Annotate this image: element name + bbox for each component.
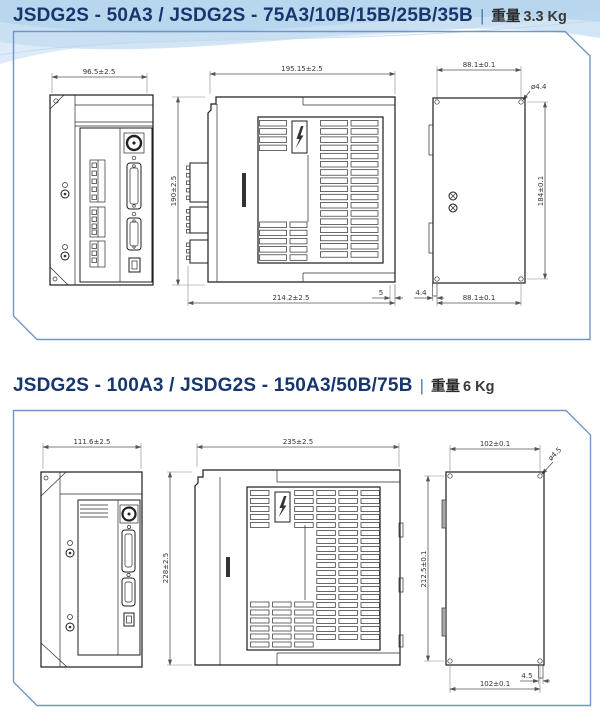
section1-model-text: JSDG2S - 50A3 / JSDG2S - 75A3/10B/15B/25…: [13, 5, 473, 26]
front-connectors: [124, 133, 144, 272]
vent-slot: [317, 507, 336, 512]
vent-slot: [317, 547, 336, 552]
vent-slot: [321, 121, 348, 127]
vent-slot: [361, 579, 380, 584]
vent-slot: [92, 217, 97, 222]
vent-slot: [339, 635, 358, 640]
vent-slot: [317, 587, 336, 592]
section2-weight-label: 重量: [431, 379, 460, 395]
title-separator: |: [420, 376, 424, 395]
vent-slot: [187, 166, 190, 170]
side-connectors: [187, 163, 209, 263]
section2-height-dim: 228±2.5: [162, 472, 192, 665]
vent-slot: [187, 196, 190, 200]
vent-slot: [361, 555, 380, 560]
vent-slot: [317, 531, 336, 536]
vent-slot: [361, 491, 380, 496]
door-vent-lines: [80, 505, 108, 517]
vent-slot: [251, 610, 270, 615]
vent-slot: [187, 243, 190, 247]
vent-slot: [317, 539, 336, 544]
vent-slot: [273, 602, 292, 607]
dim-side-bottom-width-1: 214.2±2.5: [272, 294, 309, 302]
section1-front-view: 96.5±2.5: [50, 68, 153, 285]
dsub-connector-large: [122, 530, 135, 572]
vent-slot: [187, 256, 190, 260]
warning-label: [275, 492, 290, 522]
vent-slot: [351, 145, 378, 151]
vent-slot: [351, 203, 378, 209]
vent-slot: [339, 555, 358, 560]
usb-port-icon: [124, 613, 134, 626]
vent-slot: [321, 227, 348, 233]
dim-back-tab-2: 4.5: [521, 672, 532, 680]
vent-slot: [321, 211, 348, 217]
vent-slots: [251, 491, 380, 648]
vent-slot: [260, 145, 287, 151]
vent-slot: [351, 170, 378, 176]
vent-slot: [339, 547, 358, 552]
section2-weight-value: 6 Kg: [463, 379, 494, 395]
vent-slot: [321, 170, 348, 176]
vent-slot: [187, 181, 190, 185]
vent-slot: [361, 499, 380, 504]
vent-slot: [295, 499, 314, 504]
dsub-connector-small: [127, 218, 141, 250]
vent-slot: [321, 186, 348, 192]
vent-slot: [92, 224, 97, 229]
vent-slot: [361, 619, 380, 624]
vent-slot: [251, 626, 270, 631]
vent-slot: [317, 571, 336, 576]
vent-slot: [339, 523, 358, 528]
panel-2-frame: [14, 411, 591, 706]
dim-back-tab-1: 4.4: [415, 289, 427, 297]
front-connectors-2: [120, 505, 138, 626]
vent-slot: [92, 258, 97, 263]
vent-slot: [351, 219, 378, 225]
dim-side-top-width-1: 195.15±2.5: [281, 65, 323, 73]
vent-slot: [321, 137, 348, 143]
vent-slot: [295, 602, 314, 607]
vent-slot: [361, 531, 380, 536]
vent-slot: [339, 595, 358, 600]
vent-slot: [251, 499, 270, 504]
section2-side-view: 235±2.5: [195, 438, 403, 665]
vent-slot: [295, 642, 314, 647]
mount-hole-icon: [448, 659, 452, 663]
vent-slot: [251, 642, 270, 647]
vent-slot: [92, 210, 97, 215]
mount-hole-icon: [435, 100, 439, 104]
vent-slot: [295, 507, 314, 512]
vent-slot: [317, 563, 336, 568]
vent-slot: [351, 129, 378, 135]
vent-slot: [339, 587, 358, 592]
dim-body-height-2: 228±2.5: [162, 553, 170, 583]
vent-slot: [92, 244, 97, 249]
vent-slot: [260, 222, 287, 228]
vent-slot: [187, 189, 190, 193]
vent-slot: [361, 547, 380, 552]
vent-slot: [295, 618, 314, 623]
vent-slot: [273, 610, 292, 615]
vent-slot: [339, 571, 358, 576]
dim-back-bottom-width-2: 102±0.1: [480, 680, 510, 688]
dim-back-height-1: 184±0.1: [537, 176, 545, 206]
vent-slot: [317, 555, 336, 560]
vent-slot: [339, 579, 358, 584]
vent-slot: [351, 194, 378, 200]
vent-slot: [351, 235, 378, 241]
vent-slot: [339, 531, 358, 536]
vent-slot: [260, 129, 287, 135]
vent-slot: [351, 211, 378, 217]
vent-slot: [339, 603, 358, 608]
vent-slot: [187, 217, 190, 221]
vent-slot: [295, 515, 314, 520]
vent-slot: [187, 210, 190, 214]
vent-slot: [317, 603, 336, 608]
handle-slot-icon: [242, 173, 246, 207]
vent-slot: [339, 515, 358, 520]
handle-slot-icon: [226, 557, 230, 577]
mount-hole-icon: [519, 277, 523, 281]
vent-slot: [260, 121, 287, 127]
vent-slot: [351, 227, 378, 233]
vent-slot: [339, 563, 358, 568]
vent-slot: [361, 563, 380, 568]
vent-slot: [361, 571, 380, 576]
vent-slot: [339, 491, 358, 496]
dim-hole-diameter-2: ø4.5: [547, 446, 564, 463]
vent-slot: [251, 515, 270, 520]
dim-hole-diameter-1: ø4.4: [531, 83, 547, 91]
vent-slot: [295, 523, 314, 528]
dim-front-width-1: 96.5±2.5: [83, 68, 116, 76]
section2-title: JSDG2S - 100A3 / JSDG2S - 150A3/50B/75B|…: [13, 375, 494, 397]
vent-slot: [92, 195, 97, 200]
vent-slot: [339, 539, 358, 544]
vent-slot: [361, 611, 380, 616]
vent-slot: [321, 129, 348, 135]
vent-slot: [351, 252, 378, 258]
vent-slot: [317, 579, 336, 584]
section1-side-view: 195.15±2.5 5 214.2±2.5: [187, 65, 404, 306]
vent-slot: [321, 178, 348, 184]
vent-slot: [351, 244, 378, 250]
mount-hole-icon: [519, 100, 523, 104]
vent-slot: [290, 255, 307, 260]
vent-slot: [187, 230, 190, 234]
vent-slot: [273, 618, 292, 623]
vent-slot: [321, 203, 348, 209]
vent-slot: [339, 627, 358, 632]
section1-title: JSDG2S - 50A3 / JSDG2S - 75A3/10B/15B/25…: [13, 5, 567, 27]
vent-slot: [92, 187, 97, 192]
lightning-bolt-icon: [296, 126, 304, 149]
vent-slot: [351, 186, 378, 192]
mount-hole-icon: [448, 474, 452, 478]
vent-slot: [290, 222, 307, 228]
vent-slot: [339, 611, 358, 616]
vent-slot: [361, 523, 380, 528]
vent-slot: [260, 255, 287, 260]
section2-front-view: 111.6±2.5: [41, 438, 142, 667]
vent-slot: [260, 230, 287, 236]
vent-slot: [290, 247, 307, 253]
vent-slot: [273, 634, 292, 639]
vent-slot: [92, 171, 97, 176]
mount-hole-icon: [435, 277, 439, 281]
vent-slot: [187, 250, 190, 254]
vent-slot: [321, 194, 348, 200]
vent-slot: [339, 499, 358, 504]
vent-slot: [317, 523, 336, 528]
mount-hole-icon: [538, 474, 542, 478]
vent-slot: [361, 515, 380, 520]
section1-weight-label: 重量: [491, 9, 520, 25]
vent-slot: [260, 137, 287, 143]
vent-slot: [251, 602, 270, 607]
dim-body-height-1: 190±2.5: [170, 176, 178, 206]
vent-slot: [351, 121, 378, 127]
vent-slot: [92, 230, 97, 235]
vent-slot: [290, 230, 307, 236]
section2-back-view: 102±0.1 ø4.5 212.5±0.1 4.5 102±0.1: [420, 440, 563, 693]
section2-model-text: JSDG2S - 100A3 / JSDG2S - 150A3/50B/75B: [13, 375, 413, 396]
section1-back-view: 88.1±0.1 ø4.4 4.4 184±0.1 88.1±0.1: [414, 61, 548, 306]
vent-slot: [92, 163, 97, 168]
vent-slot: [317, 515, 336, 520]
lightning-bolt-icon: [279, 496, 287, 518]
vent-slot: [295, 634, 314, 639]
vent-slot: [321, 235, 348, 241]
back-screws: [449, 192, 457, 212]
vent-slot: [351, 162, 378, 168]
vent-slot: [361, 539, 380, 544]
vent-slot: [251, 634, 270, 639]
vent-slot: [317, 491, 336, 496]
vent-slot: [351, 153, 378, 159]
vent-slot: [361, 603, 380, 608]
vent-slot: [295, 610, 314, 615]
vent-slot: [260, 247, 287, 253]
vent-slot: [92, 179, 97, 184]
vent-slot: [317, 499, 336, 504]
vent-slot: [321, 145, 348, 151]
dsub-connector-large: [127, 163, 141, 209]
dim-back-top-width-1: 88.1±0.1: [463, 61, 496, 69]
dim-side-gap-1: 5: [379, 289, 383, 297]
dimension-drawings: 96.5±2.5: [0, 0, 600, 720]
vent-slot: [317, 595, 336, 600]
usb-port-icon: [129, 258, 140, 272]
vent-slot: [361, 627, 380, 632]
vent-slot: [321, 219, 348, 225]
vent-slot: [351, 178, 378, 184]
vent-slot: [251, 618, 270, 623]
vent-slot: [321, 252, 348, 258]
flange-screws: [61, 183, 69, 261]
vent-slot: [321, 162, 348, 168]
vent-slot: [317, 619, 336, 624]
dim-back-bottom-width-1: 88.1±0.1: [463, 294, 496, 302]
dim-back-height-2: 212.5±0.1: [420, 550, 428, 587]
vent-slot: [361, 595, 380, 600]
section1-height-dim: 190±2.5: [170, 97, 205, 285]
section1-weight-value: 3.3 Kg: [523, 9, 567, 25]
vent-slot: [317, 635, 336, 640]
vent-slot: [361, 635, 380, 640]
mount-hole-icon: [538, 659, 542, 663]
vent-slot: [273, 626, 292, 631]
vent-slot: [361, 587, 380, 592]
flange-screws-2: [66, 541, 74, 632]
vent-slot: [295, 491, 314, 496]
vent-slot: [321, 244, 348, 250]
vent-slot: [339, 619, 358, 624]
vent-slot: [317, 627, 336, 632]
dim-front-width-2: 111.6±2.5: [73, 438, 110, 446]
vent-slot: [290, 238, 307, 244]
vent-slot: [273, 642, 292, 647]
vent-slot: [351, 137, 378, 143]
vent-slot: [260, 238, 287, 244]
dim-side-top-width-2: 235±2.5: [283, 438, 313, 446]
vent-slot: [187, 224, 190, 228]
vent-slot: [339, 507, 358, 512]
vent-slot: [187, 174, 190, 178]
dim-back-top-width-2: 102±0.1: [480, 440, 510, 448]
vent-slot: [251, 507, 270, 512]
vent-slot: [321, 153, 348, 159]
warning-label: [292, 121, 307, 153]
title-separator: |: [480, 6, 484, 25]
vent-slot: [361, 507, 380, 512]
terminal-blocks: [90, 160, 105, 267]
vent-slots: [260, 121, 379, 261]
vent-slot: [92, 251, 97, 256]
vent-slot: [251, 491, 270, 496]
vent-slot: [295, 626, 314, 631]
vent-slot: [317, 611, 336, 616]
vent-slot: [251, 523, 270, 528]
